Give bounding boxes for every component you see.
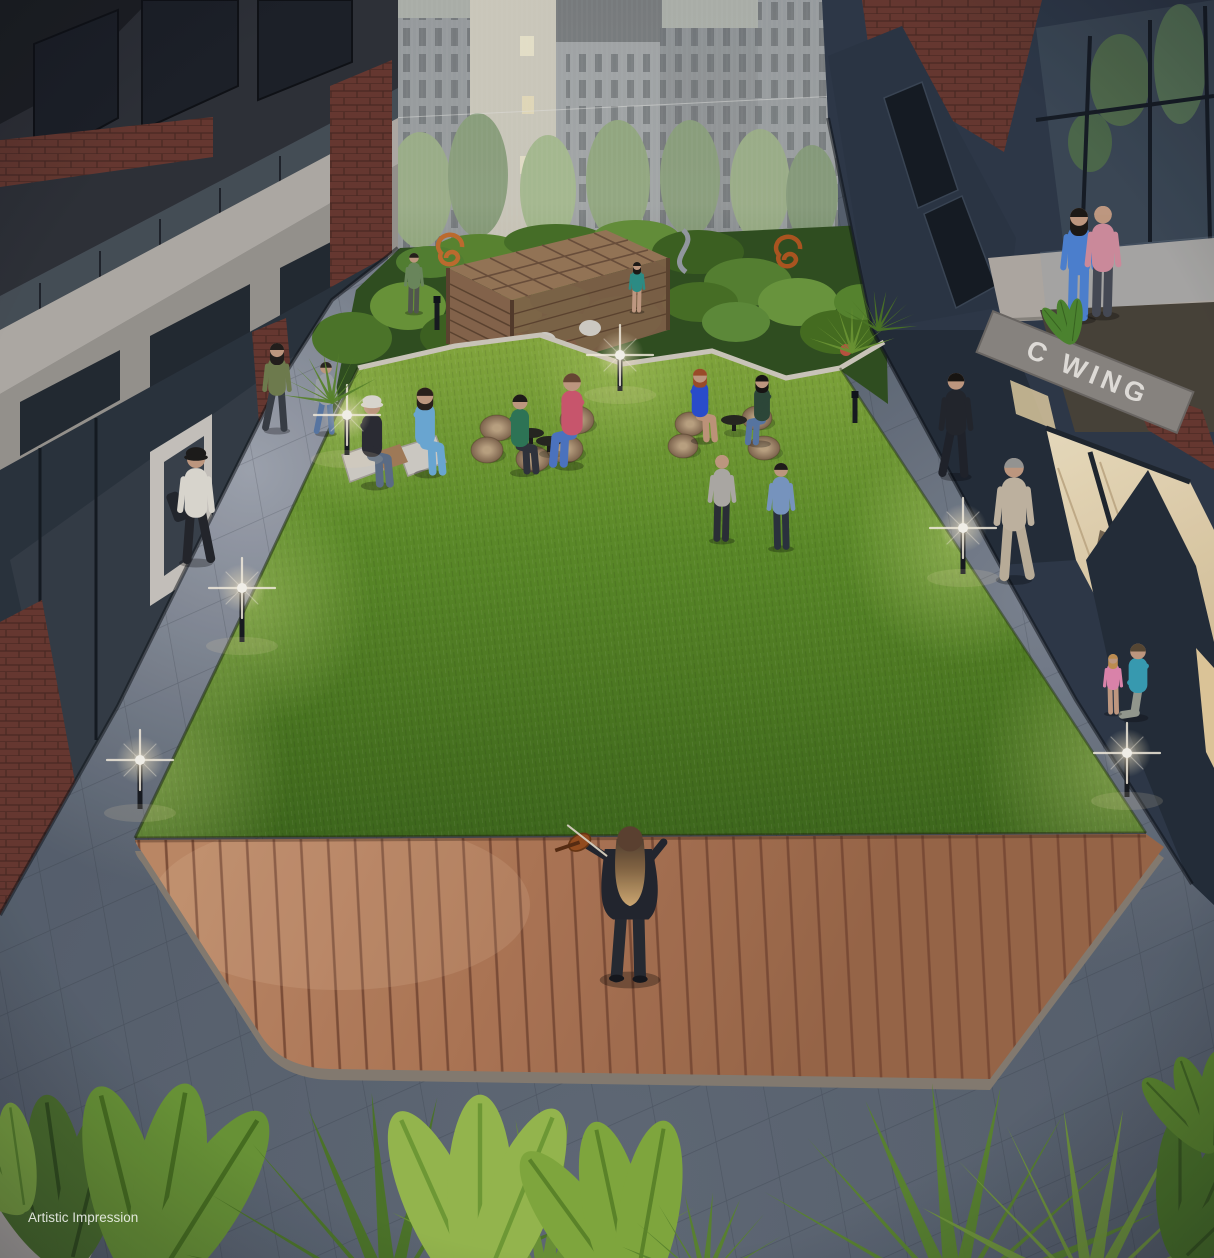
watermark-label: Artistic Impression xyxy=(28,1210,138,1225)
courtyard-render: C WING Artistic Impression xyxy=(0,0,1214,1258)
dusk-tint xyxy=(0,0,1214,1258)
